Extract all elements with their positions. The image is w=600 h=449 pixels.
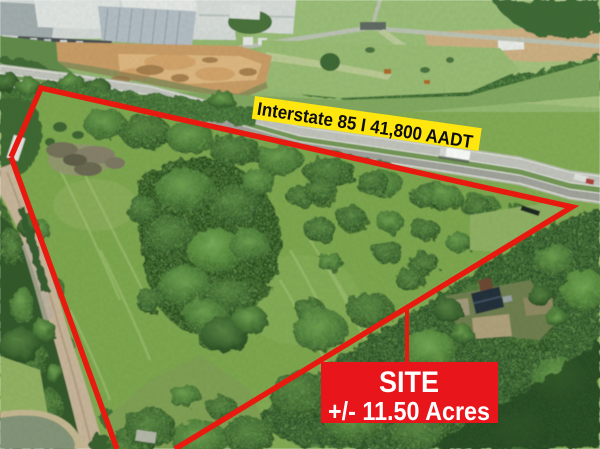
svg-text:+/- 11.50 Acres: +/- 11.50 Acres — [328, 396, 490, 426]
svg-text:SITE: SITE — [379, 366, 439, 399]
